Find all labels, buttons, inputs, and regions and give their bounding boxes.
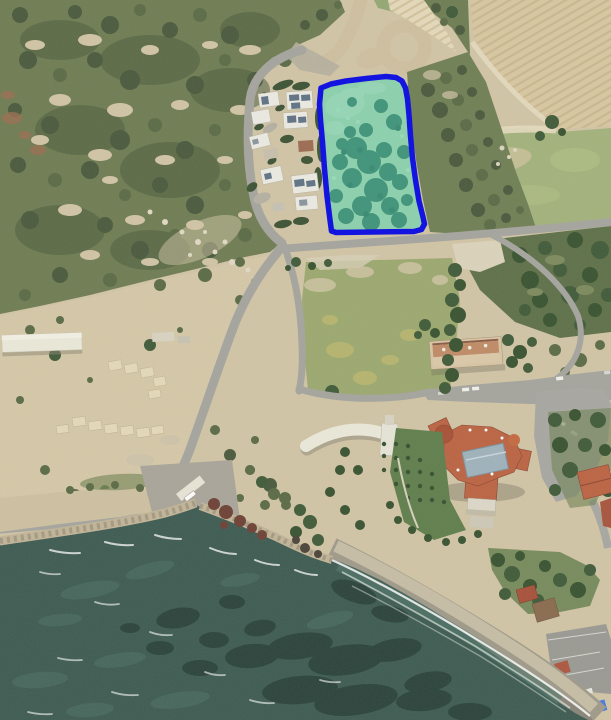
satellite-map[interactable] [0, 0, 611, 720]
photo-grain [0, 0, 611, 720]
